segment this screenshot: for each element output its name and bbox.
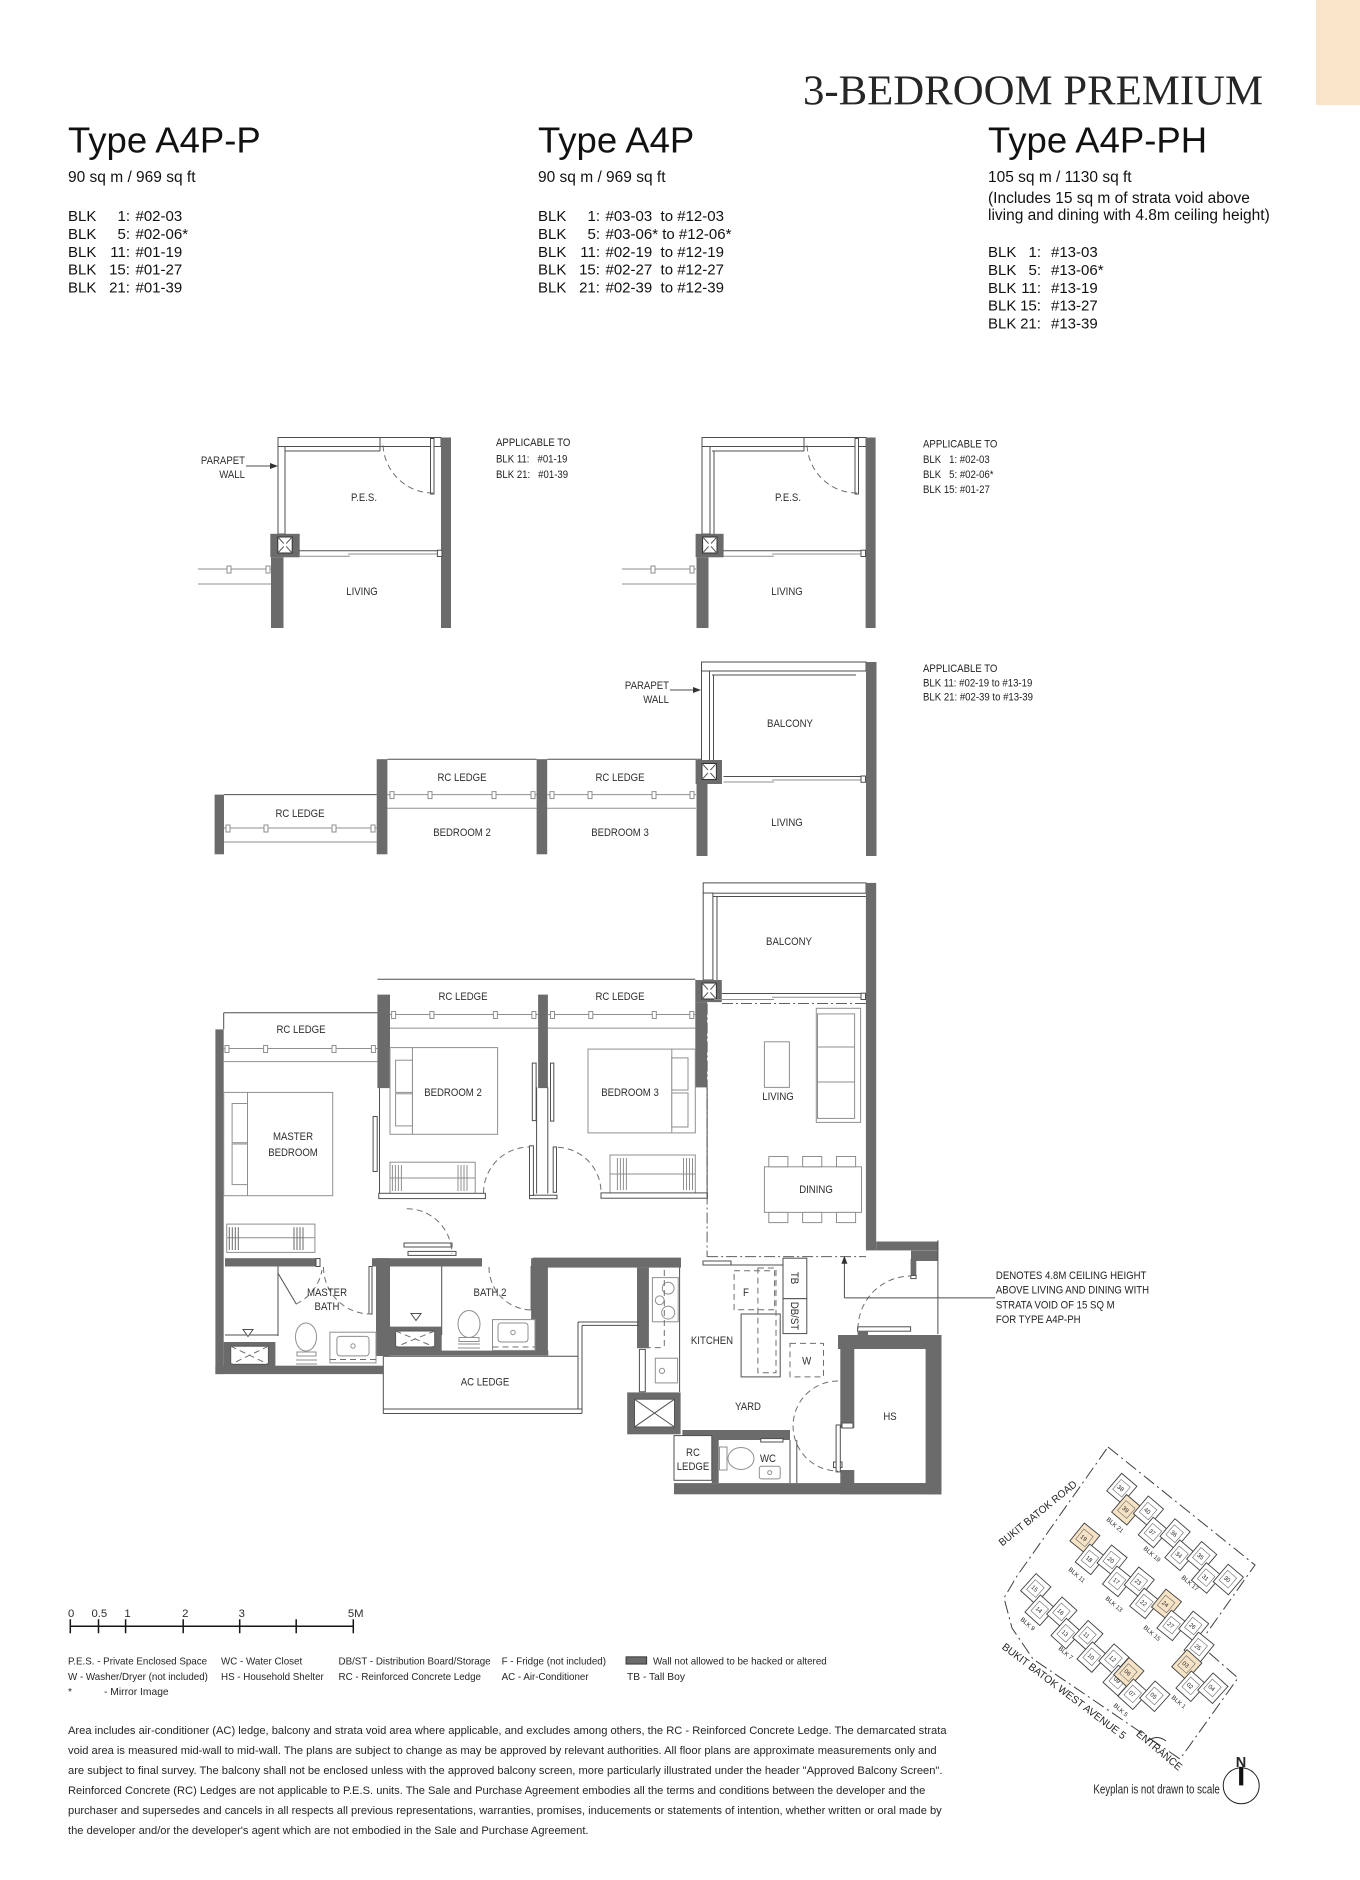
svg-text:2: 2 [182, 1608, 188, 1620]
svg-text:Type A4P: Type A4P [538, 120, 694, 161]
svg-text:0.5: 0.5 [92, 1608, 108, 1620]
svg-text:Type A4P-P: Type A4P-P [68, 120, 261, 161]
svg-text:DENOTES 4.8M CEILING HEIGHT: DENOTES 4.8M CEILING HEIGHT [996, 1270, 1147, 1282]
svg-text:BEDROOM: BEDROOM [268, 1147, 318, 1159]
svg-text:WALL: WALL [643, 694, 669, 706]
svg-text:MASTER: MASTER [273, 1131, 313, 1143]
svg-text:RC LEDGE: RC LEDGE [437, 772, 486, 784]
svg-text:BALCONY: BALCONY [767, 718, 813, 730]
svg-text:5M: 5M [348, 1608, 364, 1620]
svg-text:BEDROOM 3: BEDROOM 3 [591, 827, 649, 839]
svg-text:AC LEDGE: AC LEDGE [461, 1377, 510, 1389]
svg-text:3: 3 [239, 1608, 245, 1620]
svg-text:the developer and/or the devel: the developer and/or the developer's age… [68, 1825, 589, 1837]
svg-text:0: 0 [68, 1608, 74, 1620]
svg-text:DB/ST - Distribution Board/Sto: DB/ST - Distribution Board/Storage [339, 1657, 491, 1668]
svg-text:P.E.S.: P.E.S. [351, 492, 377, 504]
svg-text:1: 1 [124, 1608, 130, 1620]
svg-text:LIVING: LIVING [346, 586, 378, 598]
svg-text:F - Fridge (not included): F - Fridge (not included) [502, 1657, 606, 1668]
svg-text:BLK 15: #01-27: BLK 15: #01-27 [923, 484, 990, 496]
svg-text:RC: RC [686, 1447, 700, 1459]
svg-text:PARAPET: PARAPET [201, 455, 245, 467]
svg-text:BATH 2: BATH 2 [474, 1287, 507, 1299]
svg-text:90 sq m / 969 sq ft: 90 sq m / 969 sq ft [538, 169, 666, 186]
svg-text:BLK15:#02-27 to #12-27: BLK15:#02-27 to #12-27 [538, 262, 724, 279]
svg-text:Area includes air-conditioner: Area includes air-conditioner (AC) ledge… [68, 1725, 947, 1737]
svg-text:void area is measured mid-wall: void area is measured mid-wall to mid-wa… [68, 1745, 937, 1757]
svg-text:F: F [743, 1287, 749, 1299]
svg-text:TB - Tall Boy: TB - Tall Boy [627, 1672, 686, 1683]
svg-text:LIVING: LIVING [771, 817, 803, 829]
svg-text:LEDGE: LEDGE [677, 1461, 710, 1473]
svg-text:AC - Air-Conditioner: AC - Air-Conditioner [502, 1672, 590, 1683]
svg-text:RC LEDGE: RC LEDGE [595, 991, 644, 1003]
svg-text:90 sq m / 969 sq ft: 90 sq m / 969 sq ft [68, 169, 196, 186]
svg-text:RC LEDGE: RC LEDGE [595, 772, 644, 784]
svg-text:HS: HS [883, 1411, 897, 1423]
svg-text:WC - Water Closet: WC - Water Closet [221, 1657, 302, 1668]
svg-text:BEDROOM 2: BEDROOM 2 [433, 827, 491, 839]
svg-text:LIVING: LIVING [771, 586, 803, 598]
svg-text:BATH: BATH [315, 1301, 340, 1313]
svg-text:BALCONY: BALCONY [766, 936, 812, 948]
svg-text:HS - Household Shelter: HS - Household Shelter [221, 1672, 324, 1683]
svg-text:BLK11:#02-19 to #12-19: BLK11:#02-19 to #12-19 [538, 244, 724, 261]
svg-text:BLK1:#03-03 to #12-03: BLK1:#03-03 to #12-03 [538, 208, 724, 225]
svg-text:W - Washer/Dryer (not included: W - Washer/Dryer (not included) [68, 1672, 208, 1683]
svg-text:STRATA VOID OF 15 SQ M: STRATA VOID OF 15 SQ M [996, 1299, 1115, 1311]
svg-text:BEDROOM 2: BEDROOM 2 [424, 1087, 482, 1099]
svg-text:BLK5:#02-06*: BLK5:#02-06* [68, 226, 188, 243]
svg-text:DB/ST: DB/ST [788, 1302, 800, 1330]
svg-text:BLK1:#02-03: BLK1:#02-03 [68, 208, 182, 225]
svg-text:MASTER: MASTER [307, 1287, 347, 1299]
svg-text:Reinforced Concrete (RC) Ledge: Reinforced Concrete (RC) Ledges are not … [68, 1785, 925, 1797]
svg-text:BLK 21: #01-39: BLK 21: #01-39 [496, 469, 568, 481]
svg-text:Type A4P-PH: Type A4P-PH [988, 120, 1207, 161]
svg-text:P.E.S. - Private Enclosed Spac: P.E.S. - Private Enclosed Space [68, 1657, 207, 1668]
svg-text:BLK 11: #02-19 to #13-19: BLK 11: #02-19 to #13-19 [923, 678, 1032, 690]
svg-text:W: W [802, 1356, 811, 1368]
svg-text:BLK15:#01-27: BLK15:#01-27 [68, 262, 182, 279]
svg-text:TB: TB [788, 1272, 800, 1284]
svg-text:LIVING: LIVING [762, 1091, 794, 1103]
svg-text:PARAPET: PARAPET [625, 680, 669, 692]
svg-text:Wall not allowed to be hacked: Wall not allowed to be hacked or altered [653, 1657, 827, 1668]
svg-text:living and dining with 4.8m ce: living and dining with 4.8m ceiling heig… [988, 207, 1270, 224]
svg-text:BLK21:#02-39 to #12-39: BLK21:#02-39 to #12-39 [538, 280, 724, 297]
svg-text:BLK11:#01-19: BLK11:#01-19 [68, 244, 182, 261]
svg-text:WALL: WALL [219, 469, 245, 481]
svg-text:BLK 5: #02-06*: BLK 5: #02-06* [923, 469, 994, 481]
svg-text:ABOVE LIVING AND DINING WITH: ABOVE LIVING AND DINING WITH [996, 1285, 1149, 1297]
svg-text:KITCHEN: KITCHEN [691, 1335, 733, 1347]
svg-text:BEDROOM 3: BEDROOM 3 [601, 1087, 659, 1099]
svg-text:are subject to final survey. T: are subject to final survey. The balcony… [68, 1765, 943, 1777]
svg-text:DINING: DINING [799, 1184, 833, 1196]
svg-text:APPLICABLE TO: APPLICABLE TO [923, 439, 998, 451]
svg-text:105 sq m / 1130 sq ft: 105 sq m / 1130 sq ft [988, 169, 1132, 186]
svg-text:purchaser and supersedes and c: purchaser and supersedes and cancels in … [68, 1805, 942, 1817]
svg-text:P.E.S.: P.E.S. [775, 492, 801, 504]
svg-text:3-BEDROOM PREMIUM: 3-BEDROOM PREMIUM [803, 68, 1263, 115]
svg-text:Keyplan is not drawn to scale: Keyplan is not drawn to scale [1093, 1783, 1219, 1797]
svg-text:BLK 11: #01-19: BLK 11: #01-19 [496, 454, 567, 466]
svg-text:APPLICABLE TO: APPLICABLE TO [496, 437, 571, 449]
svg-text:APPLICABLE TO: APPLICABLE TO [923, 663, 998, 675]
svg-text:RC LEDGE: RC LEDGE [276, 1024, 325, 1036]
svg-text:RC LEDGE: RC LEDGE [275, 808, 324, 820]
svg-text:RC LEDGE: RC LEDGE [438, 991, 487, 1003]
svg-text:BLK 1: #02-03: BLK 1: #02-03 [923, 454, 990, 466]
svg-text:(Includes 15 sq m of strata vo: (Includes 15 sq m of strata void above [988, 190, 1250, 207]
svg-text:FOR TYPE A4P-PH: FOR TYPE A4P-PH [996, 1314, 1081, 1326]
svg-text:YARD: YARD [735, 1401, 761, 1413]
svg-text:RC - Reinforced Concrete Ledge: RC - Reinforced Concrete Ledge [339, 1672, 482, 1683]
svg-text:WC: WC [760, 1453, 776, 1465]
svg-text:BLK 21: #02-39 to #13-39: BLK 21: #02-39 to #13-39 [923, 692, 1033, 704]
svg-text:BLK21:#01-39: BLK21:#01-39 [68, 280, 182, 297]
